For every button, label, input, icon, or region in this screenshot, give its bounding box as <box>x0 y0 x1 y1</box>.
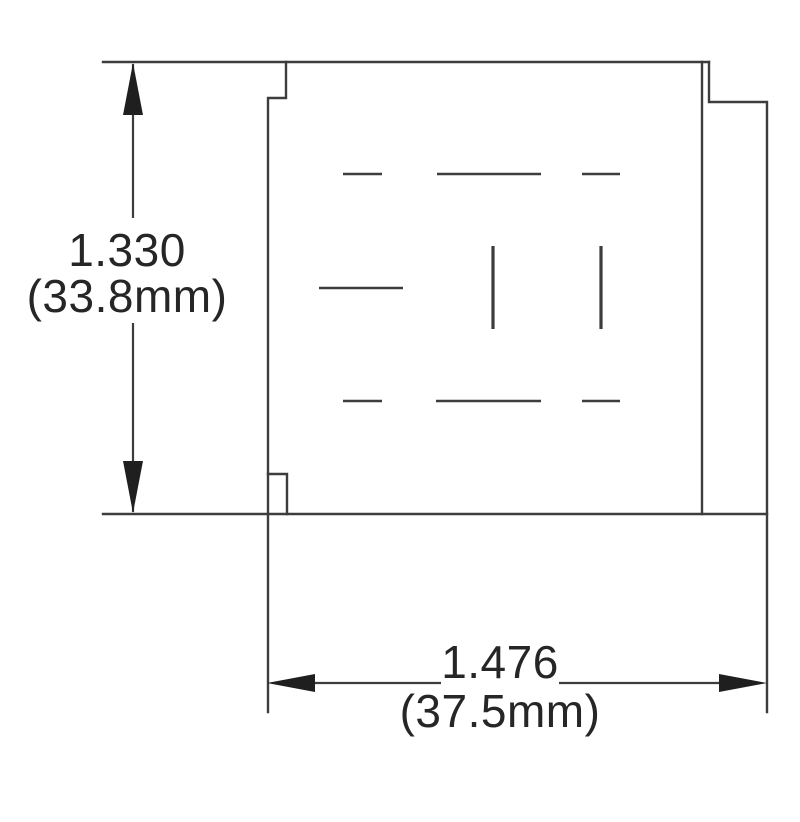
left-edge-with-top-notch <box>268 62 286 712</box>
relay-footprint-drawing: 1.330 (33.8mm) 1.476 (37.5mm) <box>0 0 800 822</box>
right-arrowhead <box>719 674 767 692</box>
up-arrowhead <box>123 63 143 115</box>
horizontal-dimension-inches-label: 1.476 <box>441 636 559 688</box>
horizontal-dimension-labels: 1.476 (37.5mm) <box>400 636 601 737</box>
vertical-dimension-mm-label: (33.8mm) <box>27 270 228 322</box>
left-arrowhead <box>267 674 315 692</box>
terminal-slot-marks <box>319 174 620 401</box>
vertical-dimension: 1.330 (33.8mm) <box>27 63 228 513</box>
dimension-drawing-canvas: 1.330 (33.8mm) 1.476 (37.5mm) <box>0 0 800 822</box>
component-outline <box>103 62 767 712</box>
right-step-flange-edge <box>709 62 767 712</box>
bottom-left-notch <box>268 474 287 514</box>
vertical-dimension-inches-label: 1.330 <box>68 224 186 276</box>
vertical-dimension-labels: 1.330 (33.8mm) <box>27 224 228 322</box>
down-arrowhead <box>123 461 143 513</box>
horizontal-dimension: 1.476 (37.5mm) <box>267 636 767 737</box>
horizontal-dimension-mm-label: (37.5mm) <box>400 685 601 737</box>
